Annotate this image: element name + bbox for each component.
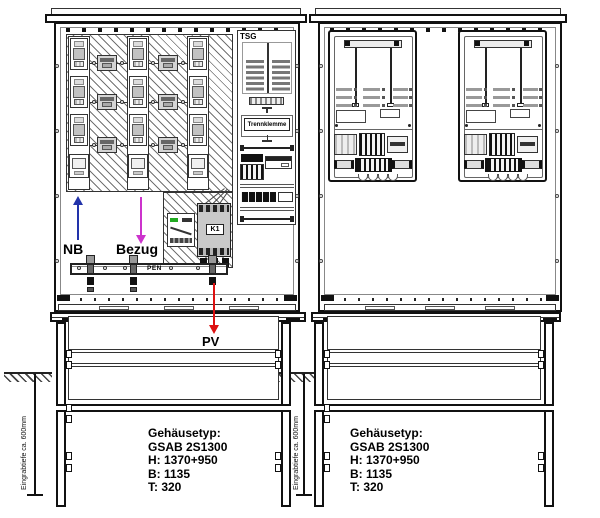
connector-top [161,97,175,101]
post-clamp [66,464,72,472]
fuse-label-window [74,41,84,47]
nh-fuse-switch [189,114,207,146]
device-module [278,192,293,202]
fuse-base [74,99,84,105]
screw-icon [319,129,323,133]
terminal-bars [466,88,482,107]
stand-right-frame [327,316,541,400]
panel-inner-frame [334,36,413,178]
stand-post [314,322,324,507]
transformer-core-line [267,43,269,93]
contactor-terminals-top [199,205,229,212]
technical-drawing: Eingrabtiefe ca. 600mm Eingrabtiefe ca. … [0,0,600,518]
frame-rail [327,349,541,353]
screw-icon [319,259,323,263]
fuse-base [74,137,84,143]
din-rail [240,216,294,222]
terminal-dots [354,88,357,107]
post-clamp [275,361,281,369]
hanger-rail [520,48,522,103]
depth-note-middle: Eingrabtiefe ca. 600mm [293,372,300,490]
screw-icon [555,259,559,263]
screw-icon [475,41,480,46]
screw-icon [55,64,59,68]
post-clamp [324,350,330,358]
depth-note-left: Eingrabtiefe ca. 600mm [21,372,28,490]
bezug-arrow-shaft [140,197,142,235]
post-clamp [66,404,72,412]
nh-fuse-switch [189,76,207,108]
ground-hatch-left [4,372,52,382]
strip-cover-box [128,154,148,178]
wire-eyelet [151,100,155,104]
terminal-block [240,164,264,180]
wire-eyelet [120,100,124,104]
link-symbol [262,140,272,142]
connector-top [161,140,175,144]
screw-icon [55,129,59,133]
fuse-label-window [74,117,84,123]
busbar-connector [97,55,117,71]
terminal-bars [523,88,538,107]
module-bar [520,142,535,146]
panel-window [380,109,400,118]
post-clamp [324,361,330,369]
fuse-base [133,61,143,67]
bottom-dot-row [330,298,550,301]
connector-top [100,140,114,144]
fuse-base [193,99,203,105]
post-clamp [538,464,544,472]
stand-crossbar [314,404,554,412]
stand-left-frame [68,316,279,400]
panel-window [466,110,496,123]
screw-icon [555,194,559,198]
bottom-rail-band [324,304,556,311]
terminal-bars [336,88,352,107]
enclosure-info-left: Gehäusetyp: GSAB 2S1300 H: 1370+950 B: 1… [148,427,227,495]
band-slot [164,306,194,310]
post-clamp [66,361,72,369]
trennklemme-label: Trennklemme [244,118,290,131]
breaker-status-chip [170,218,178,222]
cable-entry-scallop [508,174,518,181]
nh-fuse-switch [129,38,147,70]
info-line: GSAB 2S1300 [148,441,227,455]
enclosure-info-right: Gehäusetyp: GSAB 2S1300 H: 1370+950 B: 1… [350,427,429,495]
cover-window [72,158,86,169]
post-clamp [324,464,330,472]
cable-entry-scallop [498,174,508,181]
nb-arrow-icon [73,196,83,205]
cable-entry-scallop [388,174,398,181]
fuse-handle [132,48,144,60]
busbar-hole [123,266,127,270]
terminal-dots [382,88,385,107]
divider-line [335,129,412,130]
contactor-terminals-bottom [199,248,229,255]
terminal-dots [484,88,487,107]
clamp-bar [334,160,354,169]
terminal-bars [493,88,510,107]
cover-bar [133,171,143,175]
wire-eyelet [181,143,185,147]
post-clamp [275,350,281,358]
screw-icon [319,64,323,68]
screw-icon [55,194,59,198]
info-line: Gehäusetyp: [350,427,429,441]
panel-window [336,110,366,123]
nh-fuse-switch [70,76,88,108]
transformer-coil [272,60,290,91]
fuse-label-window [133,79,143,85]
busbar-connector [97,94,117,110]
busbar-clamp [86,255,95,264]
wire-eyelet [151,61,155,65]
hanger-rail [390,48,392,103]
cable-clamp-block [355,158,392,172]
frame-rail [327,363,541,367]
cable-lug [87,287,94,292]
terminal-strip [249,97,284,105]
device-module [241,154,263,162]
fuse-base [133,99,143,105]
busbar-hole [103,266,107,270]
cover-window [131,158,145,169]
divider-line [465,129,542,130]
pv-label: PV [202,334,219,349]
fuse-base [193,137,203,143]
info-line: T: 320 [148,481,227,495]
connector-top [161,58,175,62]
corner-bracket [321,295,334,301]
busbar-hole [77,266,81,270]
module-header [266,157,291,161]
post-clamp [66,452,72,460]
module-chip [281,163,289,167]
fuse-base [133,137,143,143]
rail-end-stop [290,145,294,151]
band-slot [365,306,395,310]
rail-end-stop [240,216,244,222]
pv-wire [213,283,215,326]
transformer-coil [246,60,264,91]
clamp-bar [464,160,484,169]
connector-body [102,63,112,68]
rail-lines [240,184,294,188]
info-line: B: 1135 [350,468,429,482]
band-slot [99,306,129,310]
stand-post [281,322,291,507]
info-line: GSAB 2S1300 [350,441,429,455]
contactor-k1: K1 [197,203,231,257]
connector-top [100,58,114,62]
info-line: Gehäusetyp: [148,427,227,441]
fuse-label-window [193,79,203,85]
stand-post [544,322,554,507]
screw-icon [345,41,350,46]
wire-eyelet [92,100,96,104]
wire-eyelet [181,100,185,104]
band-slot [425,306,455,310]
fuse-label-window [133,117,143,123]
screw-dot [408,124,411,127]
wire-eyelet [92,143,96,147]
terminal-block [359,133,385,156]
meter-panel-2 [458,30,547,182]
cover-window [191,158,205,169]
busbar-clamp [130,264,137,274]
connector-body [163,145,173,150]
rail-clip [262,218,272,221]
busbar-hole [196,266,200,270]
fuse-handle [192,48,204,60]
band-slot [229,306,259,310]
wire-eyelet [151,143,155,147]
circuit-breaker [167,213,195,247]
panel-inner-frame [464,36,543,178]
bottom-dot-row [66,298,288,301]
wire-eyelet [92,61,96,65]
cable-entry-scallop [358,174,368,181]
strip-cover-box [69,154,89,178]
tsg-label: TSG [240,32,256,41]
terminal-module [387,136,408,153]
screw-dot [538,124,541,127]
cable-lug [130,277,137,285]
post-clamp [66,350,72,358]
fuse-label-window [133,41,143,47]
label-strip [241,192,276,202]
breaker-terminal [170,238,192,243]
busbar-hole [169,266,173,270]
busbar-clamp [208,255,217,264]
post-clamp [538,361,544,369]
cover-bar [74,171,84,175]
depth-dimension-line [303,374,305,495]
stand-crossbar [56,404,291,412]
screw-dot [465,124,468,127]
fuse-handle [73,48,85,60]
corner-bracket [57,295,70,301]
clamp-bar [522,160,542,169]
nh-fuse-switch [70,114,88,146]
connector-body [163,102,173,107]
rail-lines [240,207,294,211]
post-clamp [538,452,544,460]
fuse-handle [132,86,144,98]
fuse-handle [192,86,204,98]
cable-entry-scallop [378,174,388,181]
bottom-rail-band [58,304,296,311]
fuse-label-window [74,79,84,85]
nh-fuse-switch [129,76,147,108]
screw-icon [295,259,299,263]
nh-fuse-switch [129,114,147,146]
frame-rail [68,363,279,367]
screw-icon [319,194,323,198]
busbar-clamp [129,255,138,264]
busbar-connector [97,137,117,153]
nb-arrow-shaft [77,205,79,240]
info-line: H: 1370+950 [148,454,227,468]
fuse-label-window [193,41,203,47]
post-clamp [275,452,281,460]
module-bar [390,142,405,146]
terminal-bars [363,88,380,107]
fuse-handle [192,124,204,136]
terminal-bars [393,88,408,107]
info-line: B: 1135 [148,468,227,482]
post-clamp [538,350,544,358]
terminal-dots [512,88,515,107]
fuse-handle [132,124,144,136]
post-clamp [275,464,281,472]
equipment-column: TSG Trennklemme [237,30,296,225]
cable-clamp-block [485,158,522,172]
terminal-dots [539,88,542,107]
fuse-handle [73,124,85,136]
post-clamp [324,415,330,423]
connector-body [102,102,112,107]
pen-label: PEN [147,265,162,272]
device-module [265,156,292,169]
cable-entry-scallop [518,174,528,181]
connector-top [100,97,114,101]
corner-bracket [284,295,297,301]
connector-body [102,145,112,150]
trennklemme-box: Trennklemme [241,115,293,137]
depth-dimension-line [34,374,36,495]
link-symbol [262,107,272,109]
fuse-base [193,61,203,67]
cable-entry-scallop [368,174,378,181]
nh-fuse-switch [70,38,88,70]
screw-icon [555,64,559,68]
depth-dimension-foot [27,494,43,496]
rail-end-stop [240,145,244,151]
cable-entry-scallop [488,174,498,181]
fuse-base [74,61,84,67]
busbar-clamp [209,264,216,274]
wire-eyelet [120,143,124,147]
corner-bracket [546,295,559,301]
tsg-transformer [242,42,292,94]
strip-cover-box [188,154,208,178]
post-clamp [324,452,330,460]
wire-eyelet [181,61,185,65]
stand-post [56,322,66,507]
terminal-module [464,134,487,155]
pv-arrow-icon [209,325,219,334]
clamp-bar [392,160,412,169]
nb-label: NB [63,241,83,257]
connector-body [163,63,173,68]
breaker-lever [170,227,191,235]
info-line: H: 1370+950 [350,454,429,468]
frame-rail [68,349,279,353]
nh-fuse-switch [189,38,207,70]
terminal-module [517,136,538,153]
rail-clip [262,147,272,150]
terminal-dots [409,88,412,107]
busbar-connector [158,94,178,110]
screw-icon [555,129,559,133]
breaker-terminal [182,218,192,222]
cable-lug [130,287,137,292]
rail-end-stop [290,216,294,222]
cover-bar [193,171,203,175]
post-clamp [66,415,72,423]
depth-dimension-foot [296,494,312,496]
contactor-label: K1 [206,224,224,235]
info-line: T: 320 [350,481,429,495]
terminal-module [334,134,357,155]
cable-lug [87,277,94,285]
busbar-connector [158,137,178,153]
busbar-clamp [87,264,94,274]
panel-window [510,109,530,118]
fuse-handle [73,86,85,98]
screw-icon [55,259,59,263]
fuse-label-window [193,117,203,123]
meter-panel-1 [328,30,417,182]
screw-dot [335,124,338,127]
wire-eyelet [120,61,124,65]
screw-icon [524,41,529,46]
din-rail [240,145,294,151]
terminal-block [489,133,515,156]
screw-icon [394,41,399,46]
busbar-connector [158,55,178,71]
post-clamp [324,404,330,412]
band-slot [485,306,515,310]
